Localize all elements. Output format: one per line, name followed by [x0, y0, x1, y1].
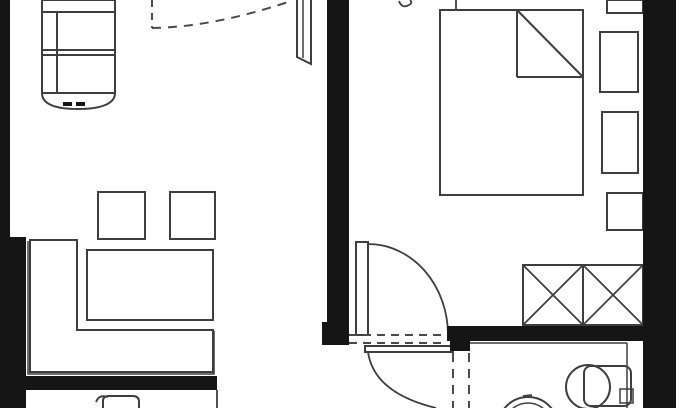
nightstand-top: [607, 0, 643, 13]
wall-center-foot: [322, 322, 334, 345]
sink-basin-inner: [504, 403, 552, 408]
bathroom-door-swing-arc: [368, 352, 436, 408]
floor-plan-drawing: [0, 0, 680, 408]
nightstand-bottom: [607, 193, 643, 230]
open-door-leaf: [297, 0, 311, 64]
cabinet-handle-tick-2: [76, 102, 85, 106]
stool-1: [98, 192, 145, 239]
pillow-2: [602, 112, 638, 173]
bathroom-door-leaf: [365, 346, 453, 352]
floor-plan: [0, 0, 680, 408]
bedroom-door-leaf: [356, 242, 368, 335]
cabinet-body: [42, 0, 115, 93]
bedroom-door-swing-arc: [368, 244, 448, 335]
corner-sofa-outer-edge: [28, 241, 214, 374]
wall-bedroom-south: [447, 326, 643, 341]
entry-door-dashed-swing-arc: [152, 2, 288, 28]
bed: [440, 10, 583, 195]
cutoff-handle-glyph: [399, 0, 411, 6]
pillow-1: [600, 32, 638, 92]
toilet-bowl: [566, 365, 610, 408]
bed-blanket-fold-diagonal: [518, 11, 582, 76]
coffee-table: [87, 250, 213, 320]
chair-partial: [103, 396, 139, 408]
wall-bathroom-stub: [450, 337, 470, 351]
wall-right: [643, 0, 676, 408]
sink-tap-tick: [523, 395, 532, 396]
corner-sofa: [30, 240, 213, 372]
cabinet-rounded-front: [42, 93, 115, 109]
toilet-tank: [584, 366, 631, 406]
wall-left-upper: [0, 0, 10, 244]
wall-living-south: [22, 376, 217, 390]
stool-2: [170, 192, 215, 239]
cabinet-handle-tick-1: [63, 102, 72, 106]
wall-center: [327, 0, 349, 345]
